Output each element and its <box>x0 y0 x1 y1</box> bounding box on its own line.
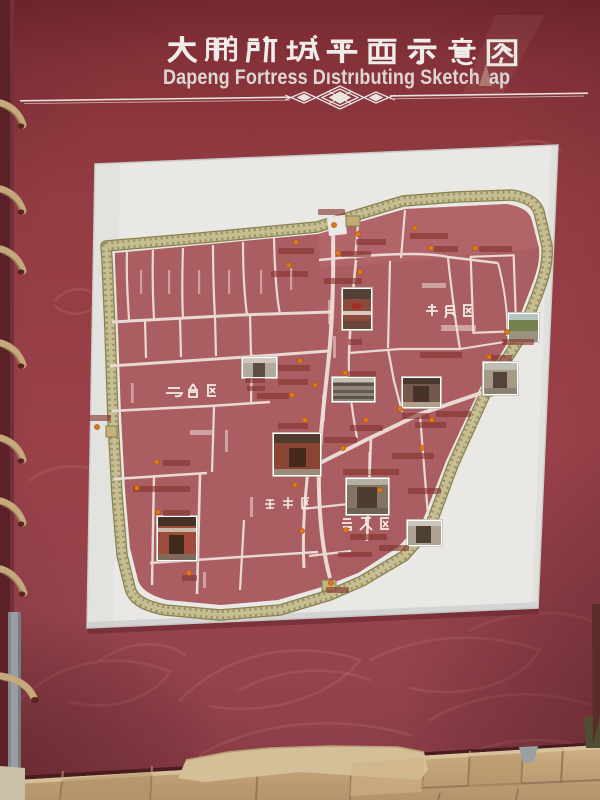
svg-text:ap: ap <box>489 66 510 90</box>
svg-text:Dapeng Fortress Dıstrıbuting S: Dapeng Fortress Dıstrıbuting Sketch <box>163 66 480 90</box>
